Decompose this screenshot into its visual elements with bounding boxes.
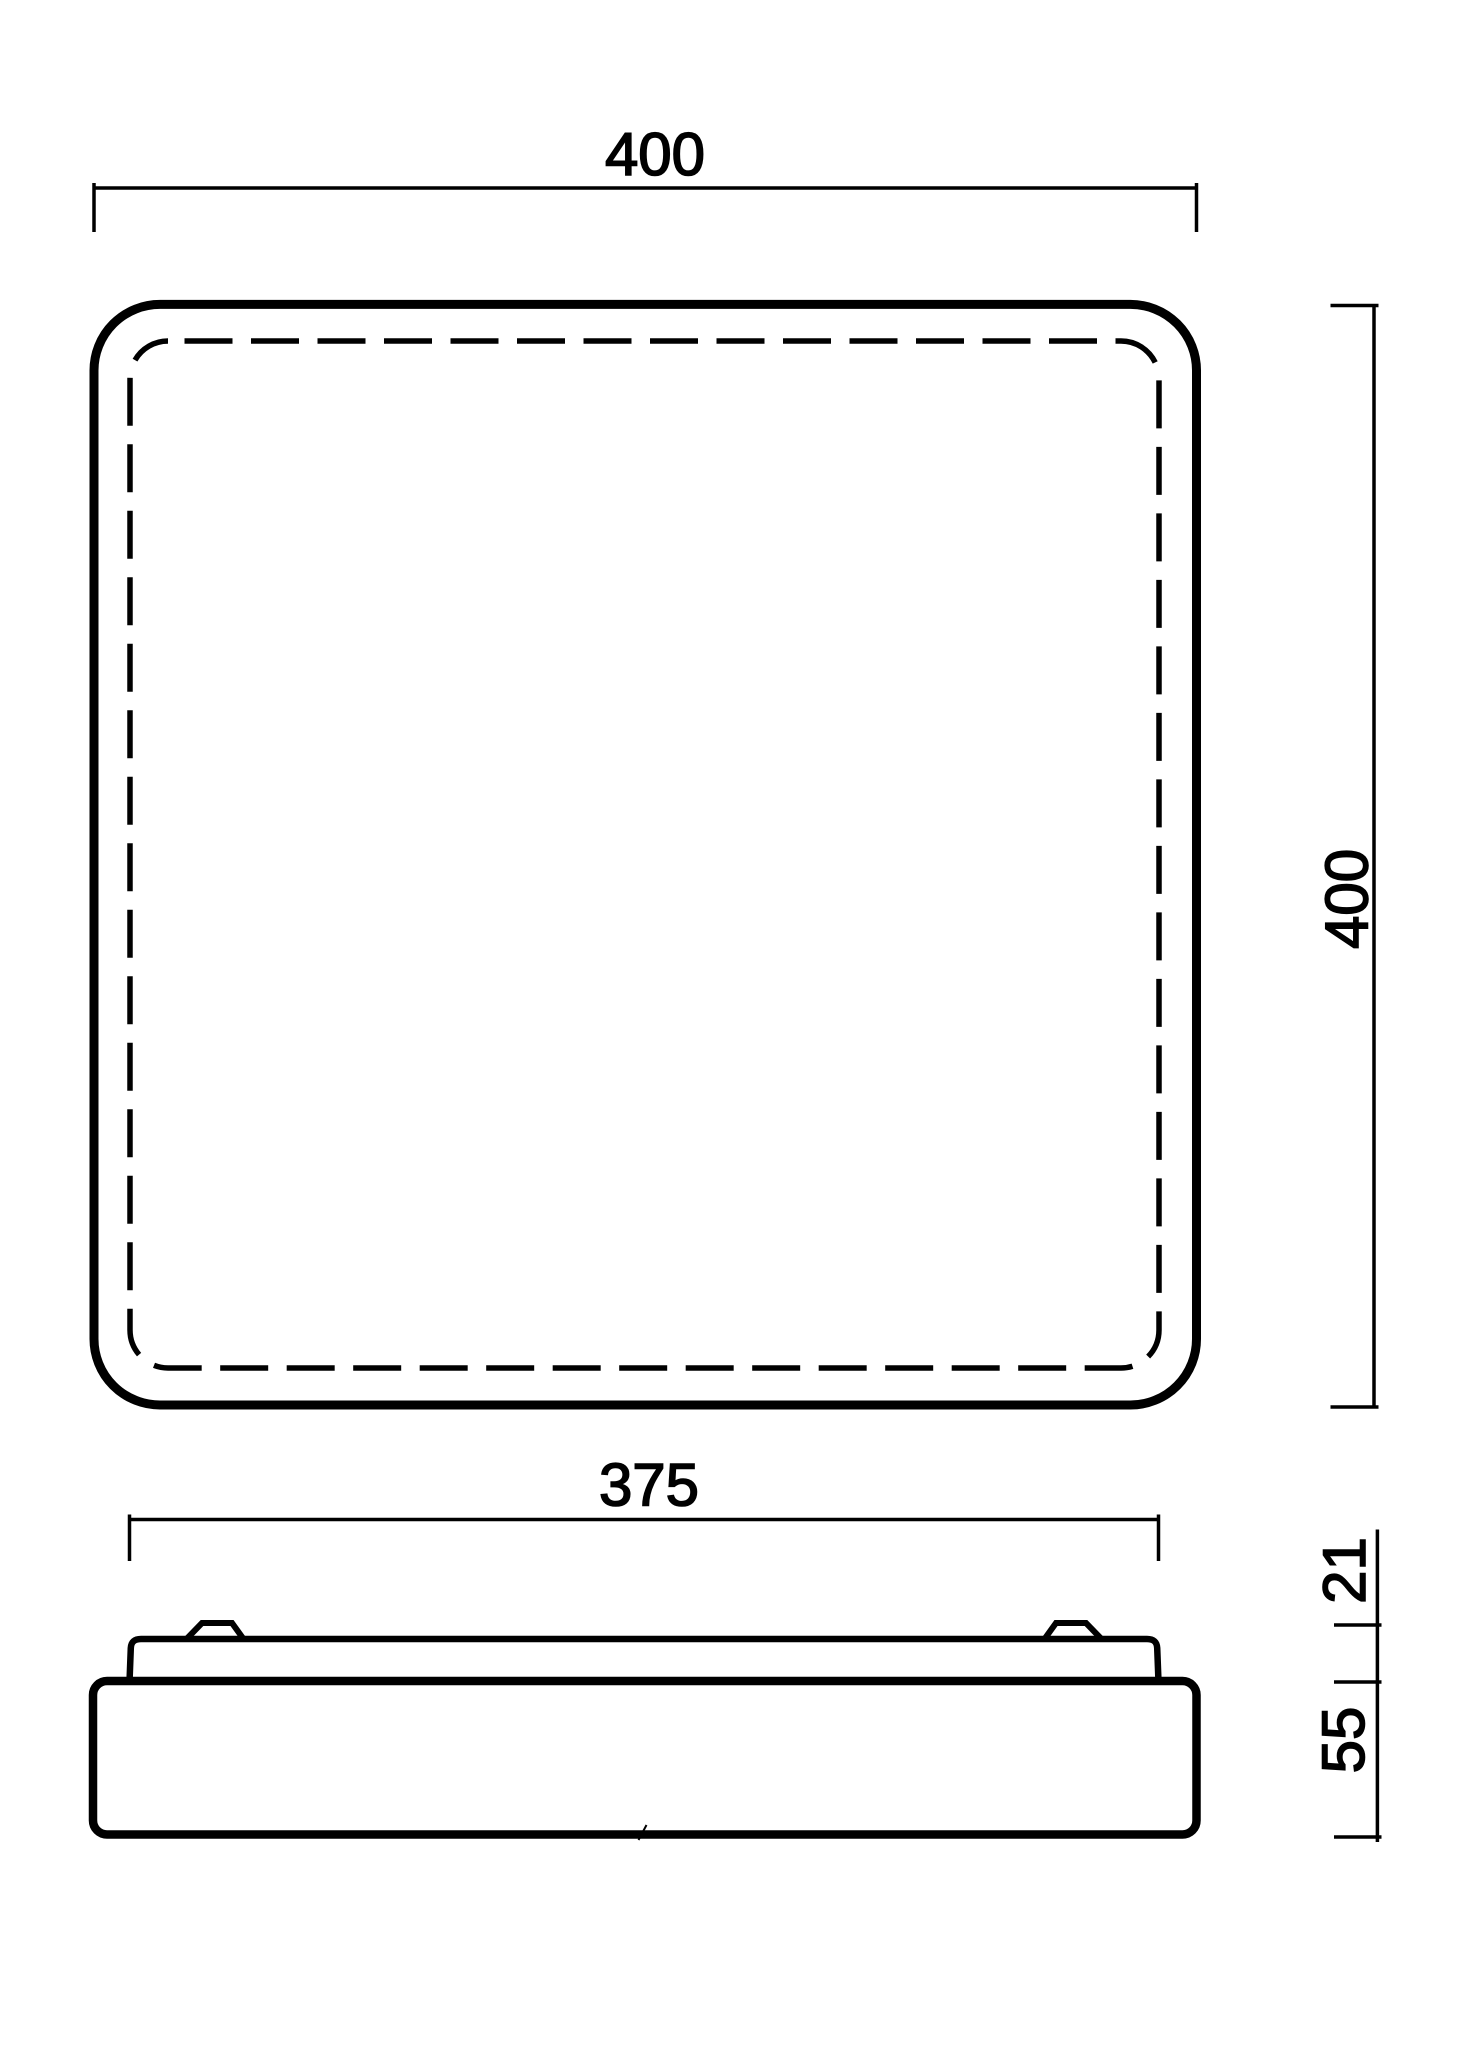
svg-text:400: 400 — [605, 121, 705, 188]
svg-text:55: 55 — [1310, 1707, 1377, 1774]
svg-text:400: 400 — [1313, 849, 1380, 949]
svg-text:375: 375 — [599, 1452, 699, 1519]
svg-text:21: 21 — [1311, 1537, 1378, 1604]
